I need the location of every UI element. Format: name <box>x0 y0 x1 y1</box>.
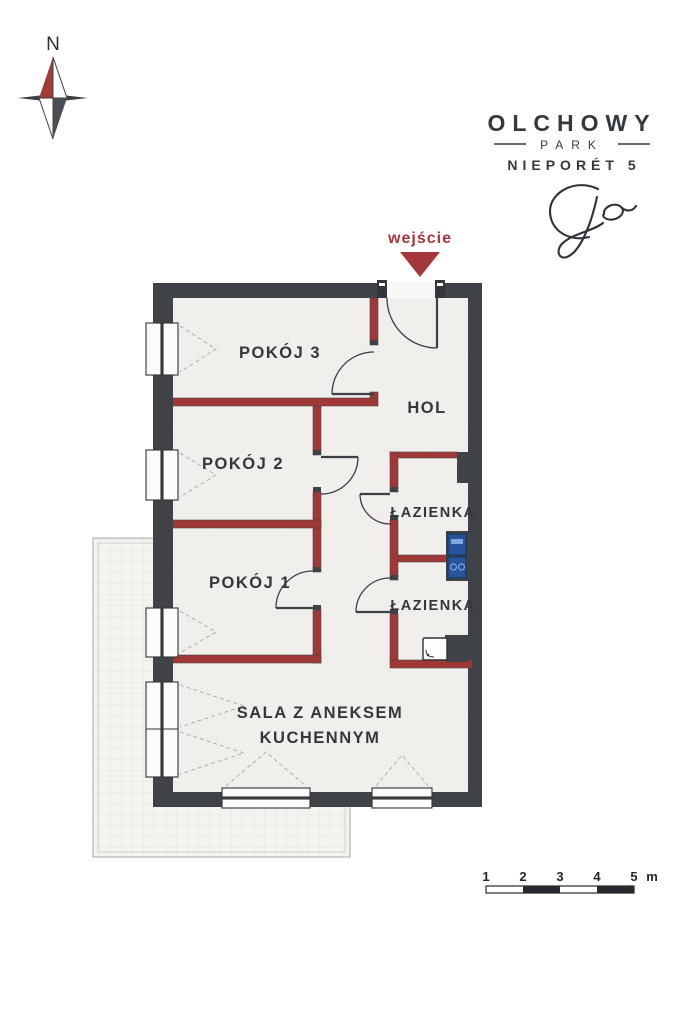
floor-plan-canvas: N OLCHOWY PARK NIEPORÉT 5 wejście <box>0 0 683 1024</box>
scale-tick-4: 4 <box>593 869 601 884</box>
room-label-sala-line2: KUCHENNYM <box>260 729 381 747</box>
script-monogram-icon <box>550 185 636 257</box>
logo: OLCHOWY PARK NIEPORÉT 5 <box>487 110 656 258</box>
entrance-label: wejście <box>387 230 452 247</box>
scale-tick-5: 5 <box>630 869 637 884</box>
room-label-pokoj1: POKÓJ 1 <box>209 573 291 592</box>
room-label-pokoj3: POKÓJ 3 <box>239 343 321 362</box>
scale-tick-1: 1 <box>482 869 489 884</box>
arrow-down-icon <box>400 252 440 277</box>
room-label-sala-line1: SALA Z ANEKSEM <box>237 704 403 722</box>
washer-icon <box>448 534 466 555</box>
scale-tick-3: 3 <box>556 869 563 884</box>
logo-location-label: NIEPORÉT 5 <box>507 157 640 173</box>
logo-park-label: PARK <box>540 138 604 152</box>
scale-unit: m <box>646 869 658 884</box>
entrance-opening <box>387 281 435 299</box>
room-label-lazienka-lower: ŁAZIENKA <box>390 598 475 614</box>
room-label-pokoj2: POKÓJ 2 <box>202 454 284 473</box>
compass-rose-icon: N <box>18 34 88 139</box>
room-label-hol: HOL <box>407 399 446 417</box>
shower-icon <box>423 638 447 660</box>
entrance-post-right <box>435 280 445 298</box>
room-label-lazienka-upper: ŁAZIENKA <box>390 505 475 521</box>
entrance-post-left <box>377 280 387 298</box>
entrance-marker: wejście <box>387 230 452 277</box>
logo-brand-name: OLCHOWY <box>487 110 656 136</box>
compass-north-label: N <box>46 34 60 55</box>
dryer-icon <box>448 557 466 578</box>
floor-plan-page: N OLCHOWY PARK NIEPORÉT 5 wejście <box>0 0 683 1024</box>
scale-tick-2: 2 <box>519 869 526 884</box>
scale-bar: 1 2 3 4 5 m <box>482 869 657 893</box>
